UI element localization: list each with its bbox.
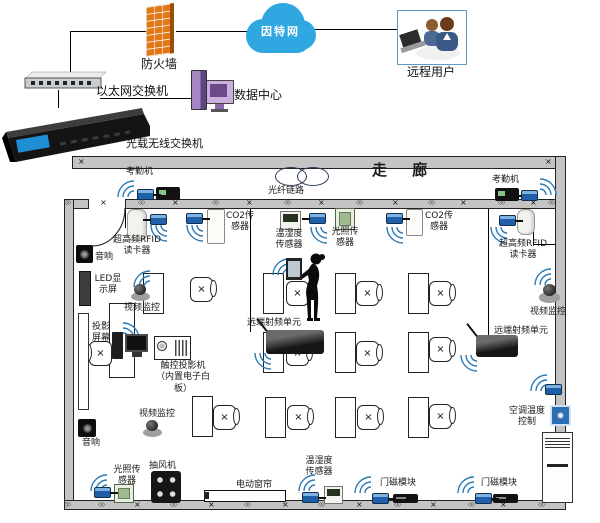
wall-hatch-mark: ◇◇: [548, 200, 553, 206]
wireless-transceiver-icon: [499, 215, 516, 226]
chair-mark: ×: [364, 412, 372, 423]
wall-hatch-mark: ◇◇: [64, 200, 69, 206]
wall-hatch-mark: ◇◇: [138, 200, 143, 206]
data-center-label: 数据中心: [234, 88, 282, 103]
wall-hatch-mark: ×: [172, 199, 179, 207]
wifi-signal-icon: [458, 354, 478, 374]
wall-hatch-mark: ×: [100, 199, 107, 207]
chair: ×: [89, 341, 112, 366]
ac-label: 空调温度 控制: [506, 406, 548, 429]
wifi-signal-icon: [384, 226, 404, 246]
air-conditioner-icon: [542, 432, 573, 503]
chair-mark: ×: [363, 288, 371, 299]
temp-hum-bottom-label: 温湿度 传感器: [300, 456, 338, 479]
student-desk: [408, 397, 429, 438]
chair: ×: [287, 405, 310, 430]
wall-hatch-mark: ◇◇: [318, 502, 323, 508]
corridor-label: 走 廊: [372, 161, 437, 180]
wifi-signal-icon: [352, 474, 372, 494]
camera-right-label: 视频监控: [530, 307, 566, 318]
wireless-transceiver-icon: [521, 190, 538, 201]
ac-controller-icon: [550, 405, 571, 426]
optical-switch-label: 光载无线交换机: [126, 137, 203, 151]
wifi-signal-icon: [539, 176, 559, 196]
co2-right-label: CO2传 感器: [421, 211, 457, 234]
projector-label: 触控投影机 （内置电子白 板）: [146, 361, 220, 395]
wireless-transceiver-icon: [386, 213, 403, 224]
wall-hatch-mark: ×: [460, 199, 467, 207]
optical-wireless-switch-icon: [0, 106, 152, 164]
remote-user-figures: [398, 11, 464, 62]
chair-mark: ×: [197, 284, 205, 295]
temp-humidity-sensor-top-icon: [280, 211, 301, 230]
camera-right-icon: [539, 284, 560, 301]
wireless-transceiver-icon: [186, 213, 203, 224]
data-center-tower-icon: [191, 70, 207, 110]
chair: ×: [429, 337, 452, 362]
exhaust-fan-icon: [151, 471, 181, 503]
ethernet-switch-icon: [20, 70, 108, 92]
chair: ×: [429, 281, 452, 306]
wifi-signal-icon: [308, 226, 328, 246]
wireless-transceiver-icon: [372, 493, 389, 504]
chair: ×: [356, 341, 379, 366]
remote-user-label: 远程用户: [404, 65, 458, 80]
student-desk: [335, 273, 356, 314]
connection-line: [312, 29, 398, 30]
rru-left-label: 远端射频单元: [247, 318, 301, 329]
wall-hatch-mark: ◇◇: [244, 502, 249, 508]
connection-line: [70, 31, 146, 32]
connection-line: [176, 31, 253, 32]
chair: ×: [429, 404, 452, 429]
touch-projector-icon: [154, 336, 191, 360]
screen-label: 投影 屏幕: [88, 322, 114, 345]
wireless-transceiver-icon: [94, 487, 111, 498]
wireless-transceiver-icon: [302, 492, 319, 503]
wireless-transceiver-icon: [150, 214, 167, 225]
camera-top-label: 视频监控: [124, 303, 160, 314]
wall-hatch-mark: ◇◇: [428, 200, 433, 206]
student-desk: [265, 397, 286, 438]
chair-mark: ×: [294, 412, 302, 423]
camera-bottom-icon: [143, 420, 162, 435]
light-top-label: 光照传 感器: [328, 227, 362, 250]
firewall-label: 防火墙: [127, 57, 191, 72]
wall-hatch-mark: ×: [246, 199, 253, 207]
rfid-right-label: 超高频RFID 读卡器: [494, 239, 552, 262]
light-bottom-label: 光照传 感器: [110, 465, 144, 488]
attendance-left-label: 考勤机: [126, 167, 153, 178]
fan-label: 抽风机: [149, 461, 176, 472]
internet-label: 因特网: [261, 23, 300, 39]
wireless-transceiver-icon: [475, 493, 492, 504]
student-desk: [335, 332, 356, 373]
left-wall: [64, 199, 74, 510]
electric-curtain-icon: [204, 490, 286, 502]
ethernet-switch-label: 以太网交换机: [96, 84, 168, 99]
door-magnet-center-icon: [393, 494, 418, 503]
remote-user-icon: [397, 10, 467, 65]
tablet-icon: [286, 258, 302, 280]
rru-right-icon: [476, 335, 518, 357]
camera-top-icon: [131, 284, 150, 300]
wifi-signal-icon: [455, 474, 475, 494]
chair: ×: [213, 405, 236, 430]
rru-right-label: 远端射频单元: [494, 326, 548, 337]
wireless-transceiver-icon: [545, 384, 562, 395]
speaker-top-icon: [76, 245, 93, 263]
wall-hatch-mark: ◇◇: [212, 200, 217, 206]
smart-classroom-network-diagram: 防火墙 因特网 远程用户 以太网交换机: [0, 0, 600, 523]
wall-hatch-mark: ◇◇: [356, 200, 361, 206]
chair-mark: ×: [96, 348, 104, 359]
wall-hatch-mark: ×: [430, 501, 437, 509]
rfid-reader-right-icon: [517, 209, 535, 235]
wifi-signal-icon: [532, 266, 552, 286]
curtain-label: 电动窗帘: [236, 480, 272, 491]
wall-hatch-mark: ◇◇: [284, 200, 289, 206]
student-desk: [192, 396, 213, 437]
wall-hatch-mark: ×: [134, 501, 141, 509]
chair-mark: ×: [436, 344, 444, 355]
chair: ×: [356, 281, 379, 306]
rfid-left-label: 超高频RFID 读卡器: [106, 235, 168, 258]
chair: ×: [357, 405, 380, 430]
wireless-transceiver-icon: [309, 213, 326, 224]
chair-mark: ×: [436, 288, 444, 299]
chair-mark: ×: [436, 411, 444, 422]
door-magnet-right-label: 门磁模块: [481, 478, 517, 489]
speaker-top-label: 音响: [95, 252, 113, 263]
student-desk: [263, 273, 284, 314]
attendance-right-label: 考勤机: [492, 175, 519, 186]
speaker-bottom-icon: [78, 419, 96, 437]
wall-hatch-mark: ×: [545, 158, 552, 166]
person-silhouette: [296, 252, 336, 324]
fiber-link-label: 光纤链路: [268, 186, 304, 197]
wall-hatch-mark: ×: [318, 199, 325, 207]
connection-line: [70, 31, 71, 72]
wall-hatch-mark: ◇◇: [64, 502, 69, 508]
door-magnet-center-label: 门磁模块: [380, 478, 416, 489]
chair: ×: [190, 277, 213, 302]
internet-cloud-icon: 因特网: [246, 3, 316, 59]
wall-hatch-mark: ◇◇: [98, 502, 103, 508]
wall-hatch-mark: ◇◇: [468, 502, 473, 508]
speaker-bottom-label: 音响: [82, 438, 100, 449]
student-desk: [335, 397, 356, 438]
wall-hatch-mark: ×: [392, 199, 399, 207]
wall-hatch-mark: ×: [356, 501, 363, 509]
temp-hum-top-label: 温湿度 传感器: [270, 229, 308, 252]
wifi-signal-icon: [252, 352, 272, 372]
wall-hatch-mark: ×: [208, 501, 215, 509]
wifi-signal-icon: [115, 178, 135, 198]
teacher-monitor-icon: [125, 334, 148, 352]
co2-left-label: CO2传 感器: [222, 211, 258, 234]
temp-humidity-sensor-bottom-icon: [324, 486, 343, 504]
wifi-signal-icon: [184, 224, 204, 244]
camera-bottom-label: 视频监控: [139, 409, 175, 420]
data-center-monitor-icon: [206, 80, 234, 104]
led-label: LED显 示屏: [90, 274, 126, 297]
student-desk: [408, 332, 429, 373]
fiber-link-ring-icon: [297, 167, 329, 186]
student-desk: [408, 273, 429, 314]
rru-left-icon: [266, 330, 324, 354]
chair-mark: ×: [363, 348, 371, 359]
firewall-icon: [146, 3, 174, 57]
wall-hatch-mark: ×: [282, 501, 289, 509]
wireless-transceiver-icon: [137, 189, 154, 200]
chair-mark: ×: [220, 412, 228, 423]
